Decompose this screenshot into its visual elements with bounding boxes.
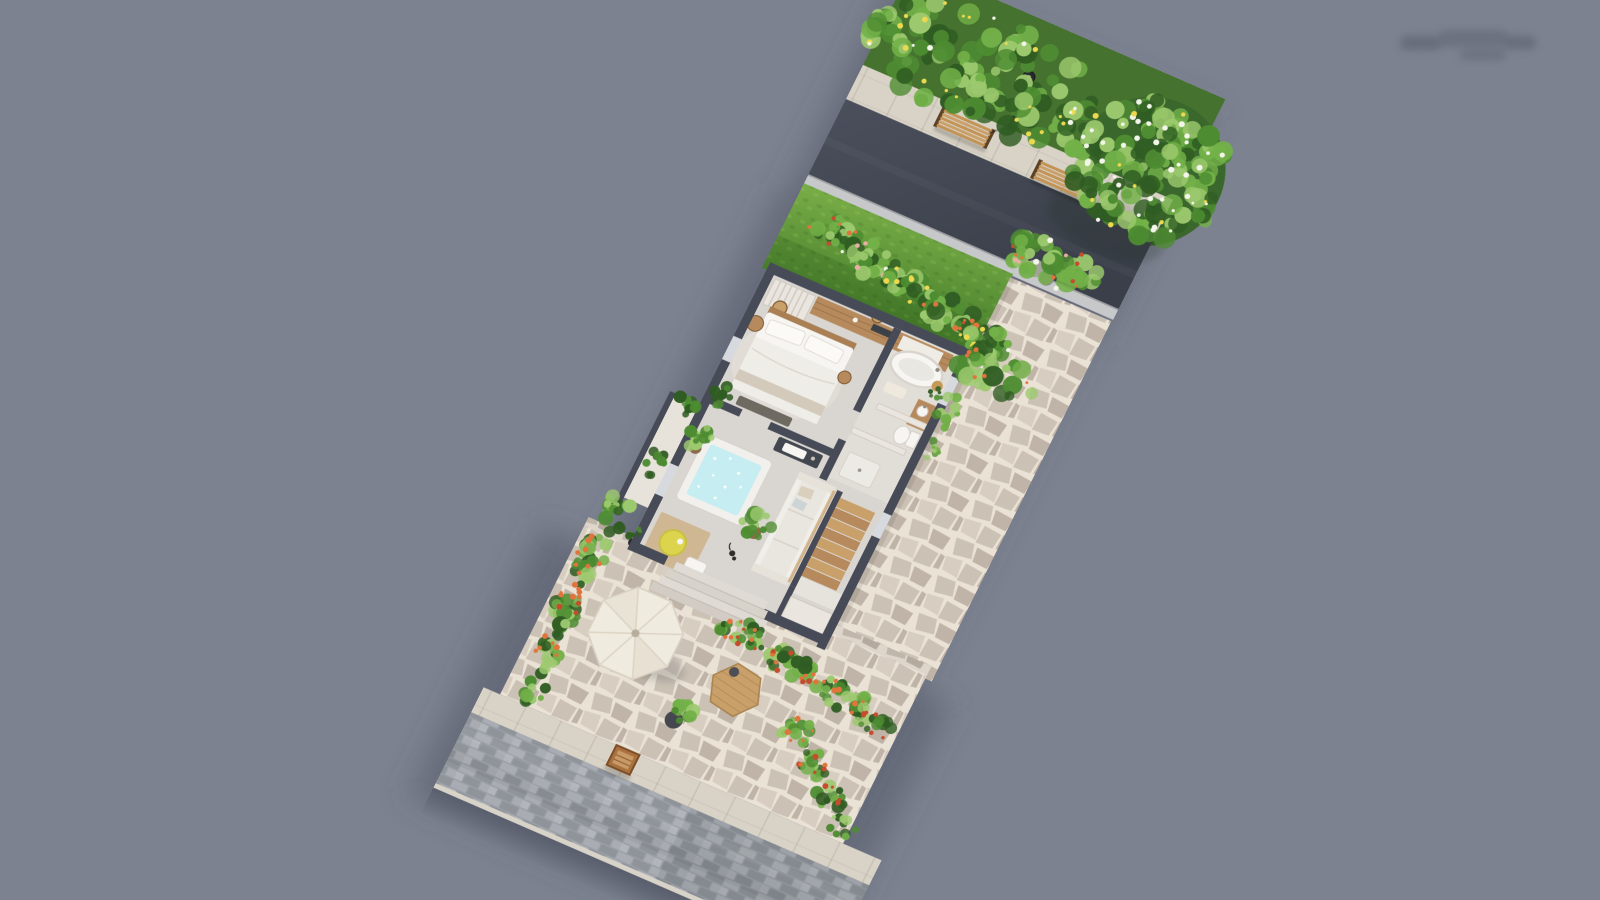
- render-canvas: [0, 0, 1600, 900]
- floorplan-render: [0, 0, 1600, 900]
